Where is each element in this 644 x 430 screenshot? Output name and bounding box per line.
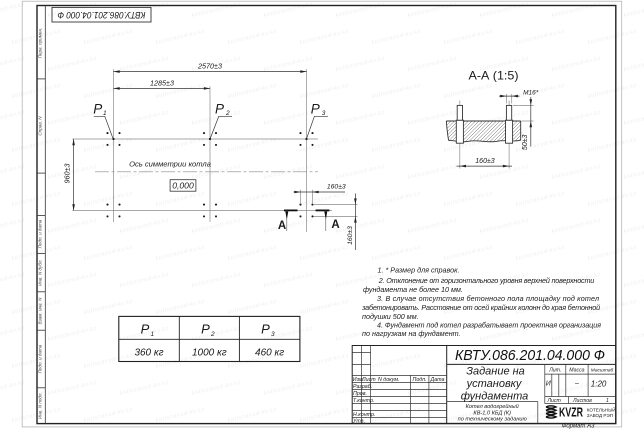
svg-text:Котел водогрейный: Котел водогрейный — [466, 403, 519, 410]
svg-text:1285±3: 1285±3 — [150, 79, 174, 88]
svg-text:по техническому заданию: по техническому заданию — [458, 417, 528, 423]
svg-text:Перв. примен.: Перв. примен. — [38, 28, 43, 59]
svg-text:Лит.: Лит. — [548, 368, 561, 374]
svg-text:Лист: Лист — [547, 398, 562, 404]
svg-text:P: P — [201, 322, 210, 337]
svg-text:1: 1 — [103, 110, 107, 117]
svg-text:1000 кг: 1000 кг — [192, 348, 227, 359]
svg-text:Справ. N: Справ. N — [38, 116, 43, 136]
svg-text:360 кг: 360 кг — [134, 348, 163, 359]
svg-text:160±3: 160±3 — [475, 158, 495, 165]
svg-text:фундамента не более 10 мм.: фундамента не более 10 мм. — [363, 285, 463, 294]
svg-text:1:20: 1:20 — [591, 379, 607, 388]
svg-text:1: 1 — [606, 398, 609, 404]
svg-text:М16*: М16* — [523, 89, 539, 96]
svg-text:Лист: Лист — [361, 377, 376, 383]
svg-text:2: 2 — [210, 331, 215, 338]
svg-text:Подп.: Подп. — [413, 377, 427, 383]
svg-text:160±3: 160±3 — [347, 226, 354, 245]
svg-text:KVZR: KVZR — [559, 405, 583, 420]
svg-text:КВТУ.086.201.04.000 Ф: КВТУ.086.201.04.000 Ф — [57, 9, 145, 20]
svg-text:А-А (1:5): А-А (1:5) — [469, 68, 519, 82]
svg-text:Листов: Листов — [572, 398, 592, 404]
svg-text:P: P — [261, 322, 270, 337]
svg-text:Т.контр.: Т.контр. — [353, 398, 374, 404]
svg-text:Масштаб: Масштаб — [591, 368, 614, 374]
svg-text:по нагрузкам на фундамент.: по нагрузкам на фундамент. — [362, 329, 461, 338]
svg-text:P: P — [141, 322, 150, 337]
svg-text:2: 2 — [225, 110, 230, 117]
svg-text:50±3: 50±3 — [522, 134, 529, 150]
svg-text:фундамента: фундамента — [461, 391, 529, 403]
svg-text:4. Фундамент под котел раз: 4. Фундамент под котел разрабатывает про… — [377, 321, 601, 330]
svg-text:3: 3 — [271, 331, 275, 338]
svg-text:КВ-1,0 КБД (К): КВ-1,0 КБД (К) — [473, 410, 511, 416]
svg-text:460 кг: 460 кг — [255, 348, 284, 359]
svg-text:P: P — [311, 102, 320, 117]
svg-text:КВТУ.086.201.04.000 Ф: КВТУ.086.201.04.000 Ф — [455, 347, 605, 364]
svg-text:Взам. инв. N: Взам. инв. N — [38, 297, 43, 324]
svg-text:3. В случае отсутствия бет: 3. В случае отсутствия бетонного пола пл… — [377, 294, 599, 303]
svg-text:2. Отклонение от горизонтал: 2. Отклонение от горизонтального уровня … — [378, 276, 595, 285]
svg-text:забетонировать. Расстояние о: забетонировать. Расстояние от осей крайн… — [361, 303, 600, 312]
svg-text:Формат А3: Формат А3 — [562, 423, 595, 429]
svg-text:Задание на: Задание на — [466, 366, 525, 378]
svg-text:0,000: 0,000 — [172, 180, 194, 190]
svg-text:А: А — [331, 219, 339, 231]
svg-text:P: P — [93, 102, 102, 117]
svg-text:Дата: Дата — [430, 377, 445, 383]
svg-text:P: P — [215, 102, 224, 117]
svg-text:960±3: 960±3 — [62, 164, 71, 184]
svg-text:1. * Размер для справок.: 1. * Размер для справок. — [378, 266, 460, 275]
svg-text:160±3: 160±3 — [327, 184, 346, 191]
svg-text:–: – — [574, 380, 579, 387]
svg-text:Инв. N подл.: Инв. N подл. — [38, 392, 43, 419]
svg-text:установку: установку — [466, 378, 523, 390]
svg-text:N докум.: N докум. — [378, 377, 399, 383]
svg-text:Инв. N дубл.: Инв. N дубл. — [38, 259, 43, 286]
svg-text:КОТЕЛЬНЫЙ: КОТЕЛЬНЫЙ — [587, 406, 616, 413]
svg-text:Н.контр.: Н.контр. — [353, 412, 375, 418]
svg-text:Ось симметрии котла: Ось симметрии котла — [129, 160, 211, 169]
svg-text:А: А — [278, 220, 286, 232]
svg-text:ЗАВОД РЭП: ЗАВОД РЭП — [587, 413, 613, 418]
svg-text:2570±3: 2570±3 — [197, 62, 222, 71]
svg-text:Масса: Масса — [569, 368, 584, 374]
svg-text:Утв.: Утв. — [353, 418, 365, 424]
svg-text:Разраб.: Разраб. — [353, 384, 372, 390]
svg-text:1: 1 — [151, 331, 155, 338]
svg-text:3: 3 — [322, 110, 326, 117]
svg-text:Подп. и дата: Подп. и дата — [38, 219, 43, 248]
svg-text:Подп. и дата: Подп. и дата — [38, 344, 43, 373]
svg-text:Пров.: Пров. — [353, 391, 367, 397]
